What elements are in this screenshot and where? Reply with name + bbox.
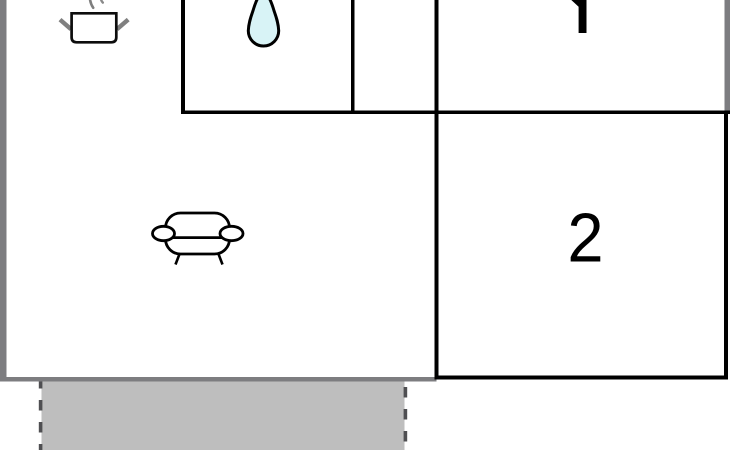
svg-text:2: 2: [567, 199, 603, 277]
